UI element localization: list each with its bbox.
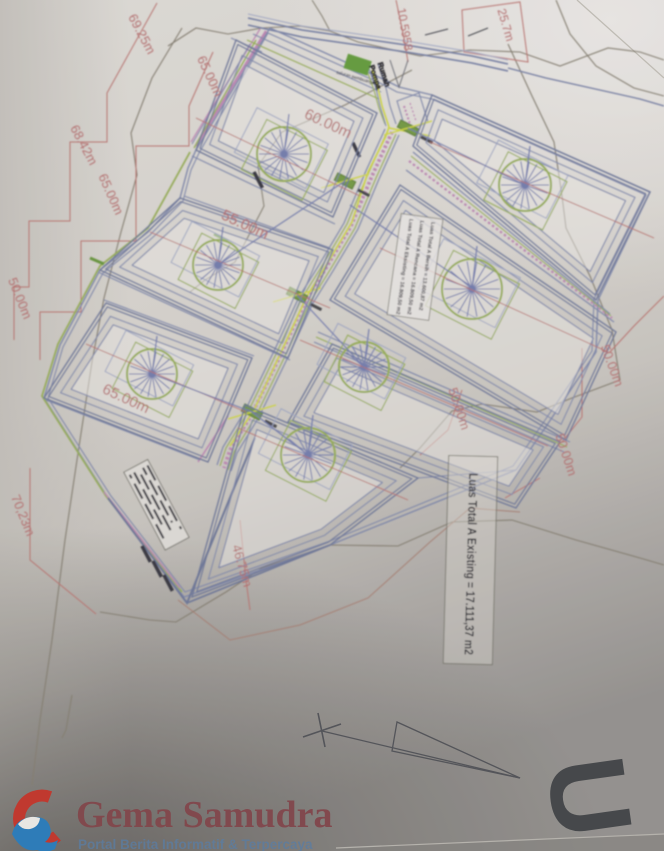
svg-text:U: U [523,749,656,845]
svg-text:Gema Samudra: Gema Samudra [76,794,333,836]
svg-text:Portal Berita Informatif & Ter: Portal Berita Informatif & Terpercaya [78,837,313,851]
